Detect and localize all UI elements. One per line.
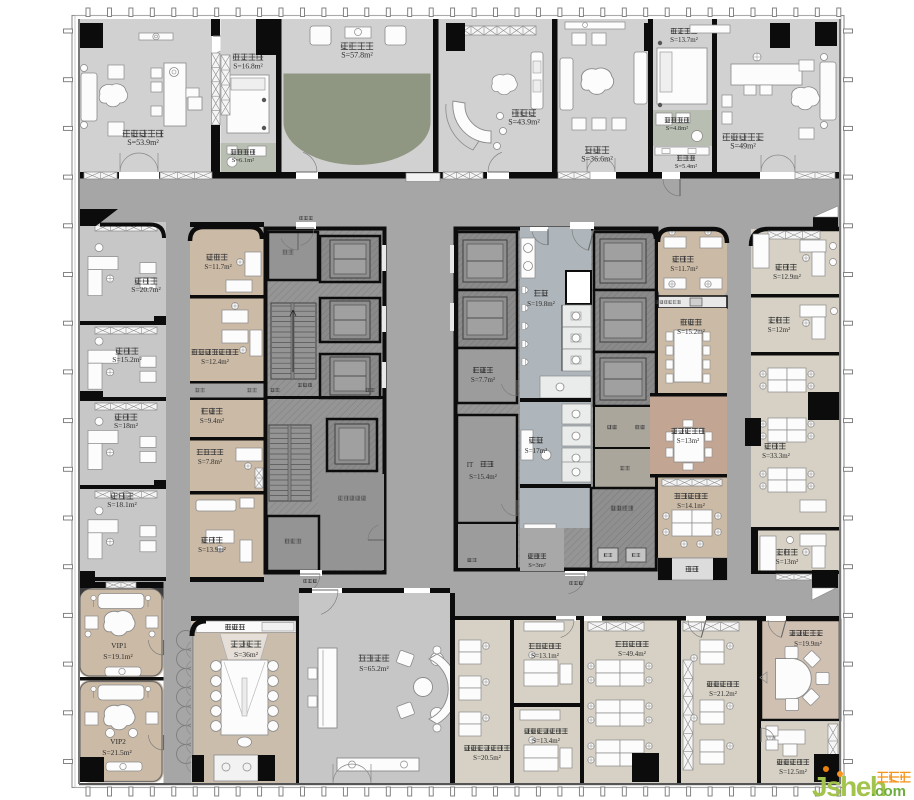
- svg-text:S=11.7m²: S=11.7m²: [670, 265, 697, 273]
- svg-text:S=49m²: S=49m²: [730, 142, 756, 151]
- svg-text:S=57.8m²: S=57.8m²: [341, 51, 373, 60]
- svg-text:.com: .com: [871, 783, 906, 800]
- svg-text:S=4.8m²: S=4.8m²: [666, 125, 688, 132]
- svg-text:S=49.4m²: S=49.4m²: [618, 650, 646, 658]
- svg-text:S=19.8m²: S=19.8m²: [527, 300, 555, 308]
- svg-text:S=43.9m²: S=43.9m²: [508, 118, 540, 127]
- svg-text:S=21.5m²: S=21.5m²: [102, 748, 132, 757]
- svg-text:S=65.2m²: S=65.2m²: [359, 664, 389, 673]
- svg-text:S=12m²: S=12m²: [768, 326, 790, 334]
- svg-text:S=20.5m²: S=20.5m²: [473, 754, 501, 762]
- svg-text:S=33.3m²: S=33.3m²: [762, 452, 790, 460]
- svg-text:S=9.4m²: S=9.4m²: [200, 417, 224, 425]
- svg-text:S=3m²: S=3m²: [528, 562, 546, 569]
- svg-text:S=5.4m²: S=5.4m²: [675, 163, 697, 170]
- svg-text:S=13m²: S=13m²: [677, 437, 699, 445]
- svg-text:S=18.1m²: S=18.1m²: [107, 500, 137, 509]
- svg-text:S=11.7m²: S=11.7m²: [204, 263, 231, 271]
- svg-text:S=12.9m²: S=12.9m²: [773, 273, 801, 281]
- svg-text:S=16.8m²: S=16.8m²: [233, 62, 263, 71]
- svg-text:S=36m²: S=36m²: [234, 650, 259, 659]
- svg-text:S=7.7m²: S=7.7m²: [471, 376, 495, 384]
- svg-text:S=53.9m²: S=53.9m²: [127, 138, 159, 147]
- svg-text:S=20.7m²: S=20.7m²: [131, 285, 161, 294]
- svg-text:S=12.5m²: S=12.5m²: [779, 768, 807, 776]
- svg-text:VIP1: VIP1: [111, 641, 127, 650]
- svg-text:S=15.2m²: S=15.2m²: [677, 328, 705, 336]
- svg-text:S=13.7m²: S=13.7m²: [670, 36, 698, 44]
- svg-text:S=21.2m²: S=21.2m²: [709, 690, 737, 698]
- svg-text:S=7.8m²: S=7.8m²: [198, 458, 222, 466]
- svg-text:S=19.1m²: S=19.1m²: [103, 652, 133, 661]
- svg-text:S=15.2m²: S=15.2m²: [112, 355, 142, 364]
- svg-text:S=13.1m²: S=13.1m²: [531, 652, 559, 660]
- svg-text:VIP2: VIP2: [110, 737, 126, 746]
- svg-text:S=13.9m²: S=13.9m²: [198, 546, 226, 554]
- svg-text:S=13m²: S=13m²: [776, 558, 798, 566]
- svg-text:S=12.4m²: S=12.4m²: [201, 358, 229, 366]
- svg-text:S=13.4m²: S=13.4m²: [532, 737, 560, 745]
- svg-text:S=18m²: S=18m²: [114, 421, 139, 430]
- svg-text:S=6.1m²: S=6.1m²: [232, 157, 254, 164]
- svg-text:IT: IT: [467, 461, 474, 469]
- svg-text:S=19.9m²: S=19.9m²: [794, 640, 822, 648]
- svg-text:S=15.4m²: S=15.4m²: [469, 473, 497, 481]
- svg-text:S=17m²: S=17m²: [525, 447, 547, 455]
- svg-text:S=14.1m²: S=14.1m²: [677, 502, 705, 510]
- svg-text:S=36.6m²: S=36.6m²: [581, 155, 613, 164]
